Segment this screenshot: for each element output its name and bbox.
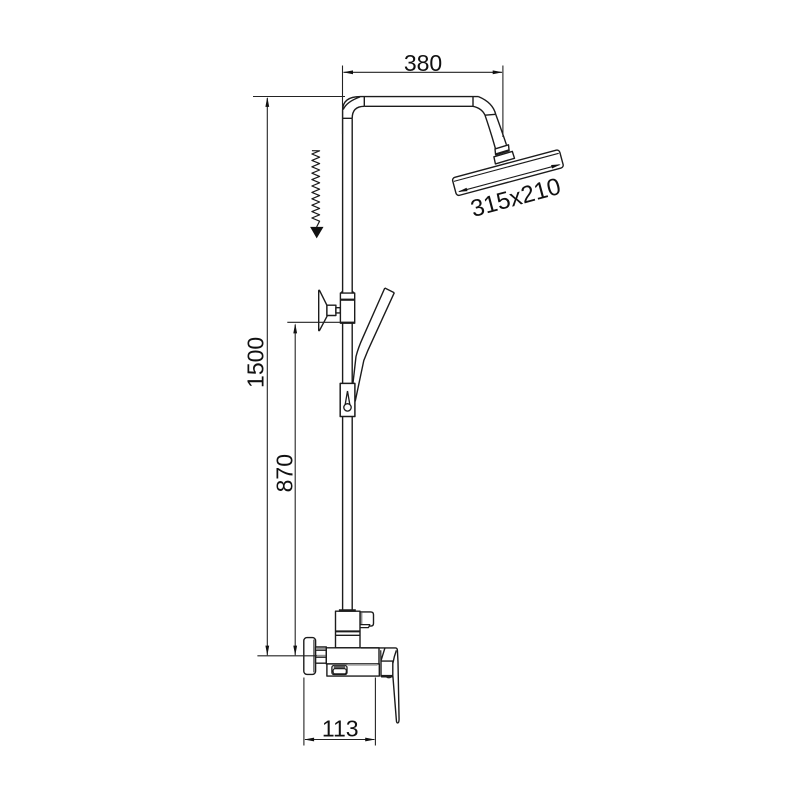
svg-text:380: 380 (404, 50, 442, 76)
svg-text:1500: 1500 (243, 337, 269, 388)
svg-text:870: 870 (272, 454, 298, 492)
svg-text:113: 113 (322, 715, 359, 741)
